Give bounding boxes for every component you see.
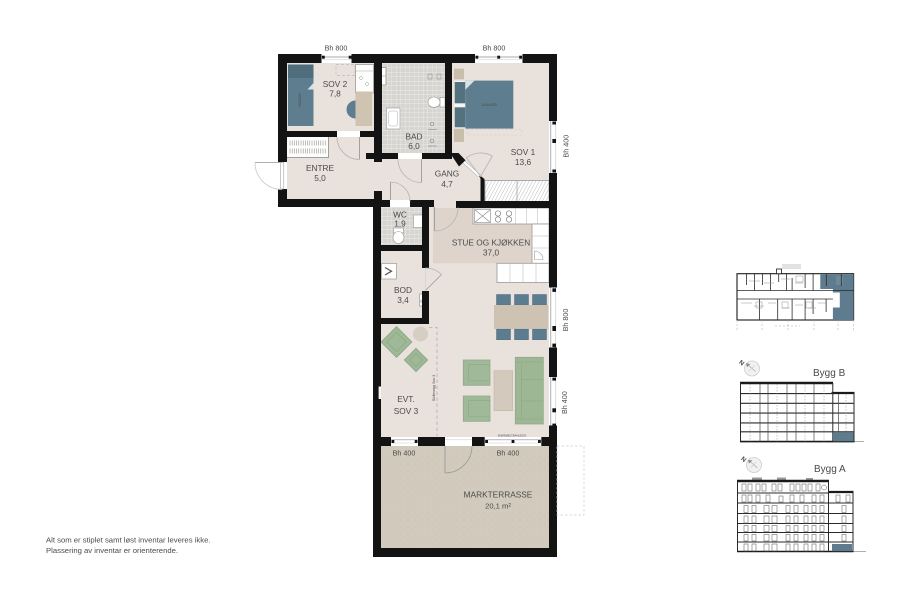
svg-text:SOV 1: SOV 1	[511, 147, 536, 157]
svg-text:Bh 400: Bh 400	[497, 449, 520, 458]
svg-text:MARKTERRASSE: MARKTERRASSE	[464, 490, 533, 500]
svg-text:Bygg A: Bygg A	[814, 464, 846, 475]
svg-text:1,9: 1,9	[394, 219, 406, 229]
svg-text:Bh 800: Bh 800	[561, 309, 570, 332]
svg-text:Bh 800: Bh 800	[483, 44, 506, 53]
svg-text:ENTRE: ENTRE	[306, 163, 335, 173]
svg-text:SNØSMELTEANLEGG: SNØSMELTEANLEGG	[498, 434, 527, 438]
svg-text:BAD: BAD	[405, 132, 422, 142]
svg-text:N: N	[737, 359, 745, 368]
svg-text:13,6: 13,6	[515, 157, 532, 167]
svg-text:4,7: 4,7	[441, 179, 453, 189]
svg-text:Bh 400: Bh 400	[560, 391, 569, 414]
svg-text:6,0: 6,0	[408, 141, 420, 151]
svg-text:Plassering av inventar er orie: Plassering av inventar er orienterende.	[46, 546, 178, 555]
svg-text:20,1 m²: 20,1 m²	[485, 502, 511, 511]
svg-text:90x200: 90x200	[297, 93, 302, 107]
svg-text:SOV 2: SOV 2	[323, 79, 348, 89]
svg-text:140x200: 140x200	[481, 102, 497, 107]
svg-text:37,0: 37,0	[483, 248, 500, 258]
svg-text:STUE OG KJØKKEN: STUE OG KJØKKEN	[452, 238, 530, 248]
svg-text:GANG: GANG	[435, 169, 459, 179]
svg-text:SOV 3: SOV 3	[394, 406, 419, 416]
svg-text:Bh 800: Bh 800	[325, 44, 348, 53]
svg-text:N: N	[739, 456, 747, 465]
svg-text:Skillevegg Sov 3: Skillevegg Sov 3	[432, 375, 436, 402]
svg-text:Alt som er stiplet samt løst i: Alt som er stiplet samt løst inventar le…	[46, 536, 210, 545]
svg-text:EVT.: EVT.	[397, 394, 415, 404]
svg-text:Bygg B: Bygg B	[813, 368, 846, 379]
svg-text:Bh 400: Bh 400	[561, 135, 570, 158]
svg-text:Bh 400: Bh 400	[393, 449, 416, 458]
svg-text:5,0: 5,0	[314, 173, 326, 183]
svg-text:7,8: 7,8	[329, 89, 341, 99]
svg-text:3,4: 3,4	[397, 295, 409, 305]
svg-text:BOD: BOD	[394, 285, 412, 295]
